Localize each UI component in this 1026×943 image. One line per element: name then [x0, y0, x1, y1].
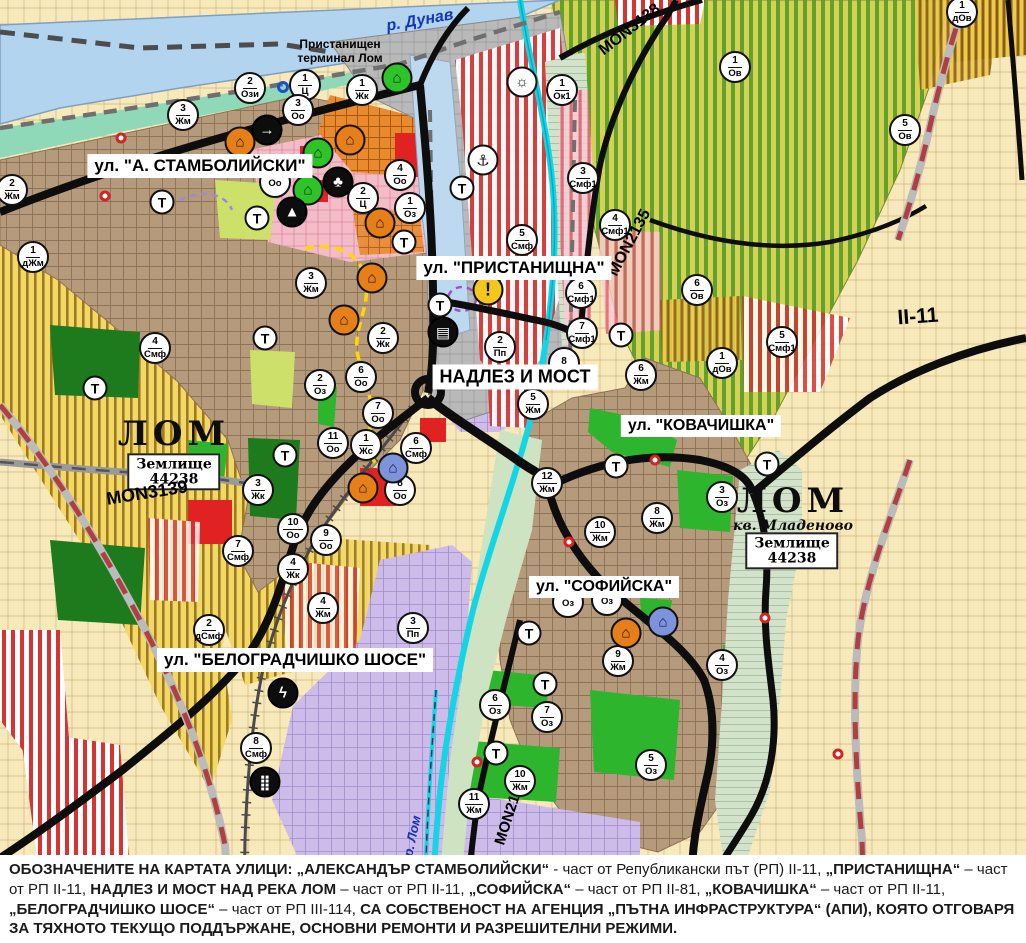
- legend-note-text: ОБОЗНАЧЕНИТЕ НА КАРТАТА УЛИЦИ: „АЛЕКСАНД…: [9, 861, 1014, 937]
- legend-bold-segment: ОБОЗНАЧЕНИТЕ НА КАРТАТА УЛИЦИ: „АЛЕКСАНД…: [9, 861, 549, 878]
- zoning-map[interactable]: ЛОМЛОМкв. МладеновоЗемлище 44238Землище …: [0, 0, 1026, 943]
- legend-bold-segment: „КОВАЧИШКА“: [705, 881, 817, 898]
- legend-text-segment: – част от РП II-11,: [336, 881, 469, 898]
- legend-text-segment: – част от РП II-81,: [571, 881, 705, 898]
- legend-bold-segment: „ПРИСТАНИЩНА“: [826, 861, 961, 878]
- legend-bold-segment: „СОФИЙСКА“: [469, 881, 571, 898]
- legend-text-segment: – част от РП II-11,: [817, 881, 945, 898]
- legend-bold-segment: „БЕЛОГРАДЧИШКО ШОСЕ“: [9, 901, 215, 918]
- legend-text-segment: - част от Републикански път (РП) II-11,: [549, 861, 825, 878]
- map-base: [0, 0, 1026, 943]
- legend-bold-segment: НАДЛЕЗ И МОСТ НАД РЕКА ЛОМ: [90, 881, 336, 898]
- legend-text-segment: – част от РП III-114,: [215, 901, 360, 918]
- map-legend-note: ОБОЗНАЧЕНИТЕ НА КАРТАТА УЛИЦИ: „АЛЕКСАНД…: [0, 855, 1026, 943]
